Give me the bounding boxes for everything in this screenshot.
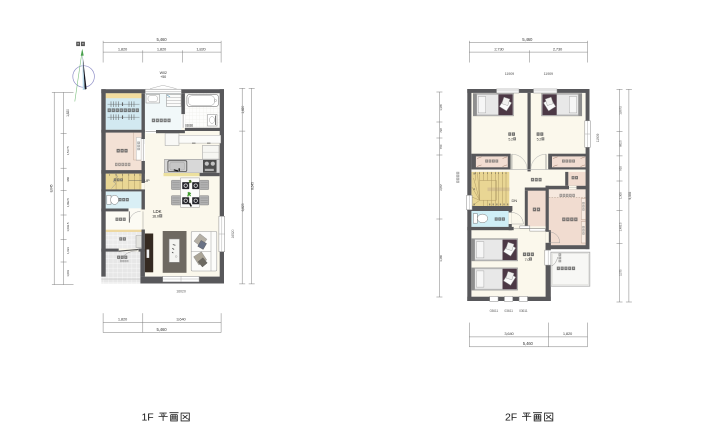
svg-text:910: 910 [619,166,623,171]
svg-text:8,645: 8,645 [250,182,254,190]
svg-text:682.5: 682.5 [619,140,623,147]
svg-text:DN: DN [512,198,518,203]
svg-text:5.2: 5.2 [537,138,542,142]
svg-text:9,555: 9,555 [628,192,632,200]
svg-text:2,867: 2,867 [439,184,443,191]
svg-text:1,820: 1,820 [196,46,206,51]
svg-text:5,460: 5,460 [522,37,533,42]
svg-text:1,820: 1,820 [66,109,70,117]
svg-text:5,460: 5,460 [156,37,167,42]
svg-text:1,820: 1,820 [118,317,128,322]
svg-text:5,460: 5,460 [523,341,534,346]
svg-text:16520: 16520 [231,229,235,238]
svg-text:1,300: 1,300 [619,192,623,199]
svg-text:1F: 1F [142,411,154,423]
svg-text:+50: +50 [160,75,166,79]
svg-text:980: 980 [66,177,70,182]
svg-text:728: 728 [439,128,443,133]
svg-text:1,482.5: 1,482.5 [619,222,623,231]
svg-text:3,480: 3,480 [439,255,443,262]
svg-text:1,365: 1,365 [439,104,443,111]
svg-text:1,867.5: 1,867.5 [619,106,623,115]
svg-text:11909: 11909 [505,72,514,76]
svg-text:1,517.5: 1,517.5 [66,146,70,155]
svg-text:5,460: 5,460 [156,327,167,332]
svg-text:2,730: 2,730 [494,46,504,51]
svg-text:760: 760 [439,144,443,149]
svg-text:5.2: 5.2 [508,138,513,142]
svg-text:1,820: 1,820 [241,106,245,114]
svg-text:1,820: 1,820 [118,46,128,51]
svg-text:LDK: LDK [153,209,161,214]
svg-text:W02: W02 [160,71,167,75]
svg-text:1,001: 1,001 [66,269,70,276]
svg-text:16.0: 16.0 [152,215,159,219]
svg-text:03611: 03611 [519,309,528,313]
svg-text:03611: 03611 [504,309,513,313]
svg-text:1,023: 1,023 [66,247,70,254]
svg-text:1,092.5: 1,092.5 [66,198,70,207]
svg-text:16020: 16020 [176,289,186,293]
svg-text:11909: 11909 [544,72,553,76]
svg-text:1,820: 1,820 [157,46,167,51]
svg-text:3,640: 3,640 [176,317,186,322]
svg-text:2F: 2F [505,411,517,423]
svg-text:3,640: 3,640 [504,331,514,336]
svg-text:7.0: 7.0 [525,258,530,262]
svg-text:2,730: 2,730 [553,46,563,51]
svg-text:2,275: 2,275 [619,269,623,276]
svg-text:03611: 03611 [490,309,499,313]
svg-text:1,092.5: 1,092.5 [66,222,70,231]
svg-text:1,820: 1,820 [563,331,573,336]
svg-text:11909: 11909 [596,134,600,143]
svg-text:UP: UP [144,178,150,183]
svg-text:6,825: 6,825 [241,203,245,211]
svg-text:8,645: 8,645 [50,184,54,192]
